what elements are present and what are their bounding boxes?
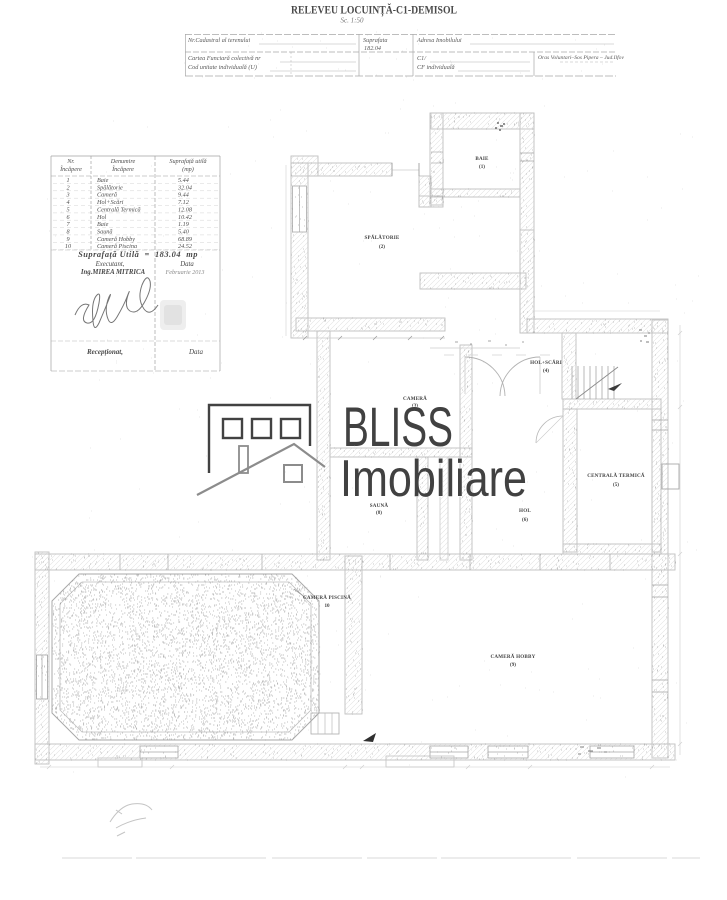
svg-text:1.19: 1.19 bbox=[178, 221, 189, 228]
svg-text:Imobiliare: Imobiliare bbox=[340, 450, 527, 508]
svg-text:(9): (9) bbox=[510, 661, 516, 668]
svg-text:HOL: HOL bbox=[519, 508, 531, 514]
svg-text:5.44: 5.44 bbox=[178, 177, 189, 184]
svg-text:9: 9 bbox=[66, 236, 69, 243]
svg-text:Cameră Hobby: Cameră Hobby bbox=[97, 236, 135, 243]
svg-text:Cameră: Cameră bbox=[97, 192, 117, 199]
svg-text:1: 1 bbox=[66, 177, 69, 184]
svg-text:Nr.Cadastral al terenului: Nr.Cadastral al terenului bbox=[187, 37, 250, 44]
svg-text:Saună: Saună bbox=[97, 228, 112, 235]
svg-text:7: 7 bbox=[66, 221, 70, 228]
svg-text:CAMERĂ HOBBY: CAMERĂ HOBBY bbox=[491, 652, 536, 660]
svg-text:(1): (1) bbox=[479, 163, 485, 170]
svg-text:7.12: 7.12 bbox=[178, 199, 189, 206]
svg-text:Suprafață utilă: Suprafață utilă bbox=[169, 158, 206, 165]
svg-text:Executant,: Executant, bbox=[95, 261, 125, 268]
svg-text:10: 10 bbox=[324, 603, 330, 609]
svg-text:C1/: C1/ bbox=[417, 55, 427, 62]
svg-text:Baie: Baie bbox=[97, 221, 109, 228]
svg-text:Suprafata: Suprafata bbox=[363, 37, 387, 44]
svg-text:32.04: 32.04 bbox=[177, 184, 192, 191]
svg-text:Adresa Imobilului: Adresa Imobilului bbox=[416, 37, 462, 44]
svg-text:10.42: 10.42 bbox=[178, 214, 192, 221]
svg-text:CENTRALĂ TERMICĂ: CENTRALĂ TERMICĂ bbox=[587, 471, 645, 479]
svg-text:(4): (4) bbox=[543, 367, 549, 374]
svg-text:2: 2 bbox=[66, 184, 69, 191]
svg-text:(5): (5) bbox=[613, 481, 619, 488]
svg-text:CAMERĂ PISCINĂ: CAMERĂ PISCINĂ bbox=[303, 593, 351, 601]
svg-text:Data: Data bbox=[188, 348, 204, 356]
svg-text:Februarie 2013: Februarie 2013 bbox=[164, 269, 204, 276]
svg-text:10: 10 bbox=[65, 243, 72, 250]
svg-text:BLISS: BLISS bbox=[343, 395, 453, 458]
svg-text:3: 3 bbox=[65, 192, 69, 199]
svg-text:BAIE: BAIE bbox=[475, 156, 489, 162]
svg-text:68.89: 68.89 bbox=[178, 236, 192, 243]
svg-text:Denumire: Denumire bbox=[110, 158, 136, 165]
svg-text:RELEVEU LOCUINȚĂ-C1-DEMISOL: RELEVEU LOCUINȚĂ-C1-DEMISOL bbox=[291, 3, 457, 18]
svg-text:Ing.MIREA MITRICA: Ing.MIREA MITRICA bbox=[80, 269, 146, 276]
svg-text:Încăpere: Încăpere bbox=[59, 165, 82, 173]
svg-text:Cartea Funciară colectivă nr: Cartea Funciară colectivă nr bbox=[188, 55, 261, 62]
svg-text:12.08: 12.08 bbox=[178, 206, 193, 213]
svg-text:8: 8 bbox=[66, 228, 70, 235]
svg-text:(mp): (mp) bbox=[182, 166, 194, 173]
svg-text:Centrală Termică: Centrală Termică bbox=[97, 206, 141, 213]
svg-text:6: 6 bbox=[66, 214, 70, 221]
svg-text:Recepționat,: Recepționat, bbox=[86, 348, 123, 356]
svg-text:5: 5 bbox=[66, 206, 69, 213]
svg-text:5.40: 5.40 bbox=[178, 228, 190, 235]
svg-text:Baie: Baie bbox=[97, 177, 109, 184]
svg-text:(8): (8) bbox=[376, 509, 382, 516]
svg-text:Spălătorie: Spălătorie bbox=[97, 184, 123, 191]
svg-text:(2): (2) bbox=[379, 243, 385, 250]
svg-text:SPĂLĂTORIE: SPĂLĂTORIE bbox=[364, 233, 399, 241]
svg-text:Cod unitate individuală (U): Cod unitate individuală (U) bbox=[188, 64, 257, 71]
svg-text:9.44: 9.44 bbox=[178, 192, 189, 199]
svg-text:Hol+Scări: Hol+Scări bbox=[96, 199, 124, 206]
svg-text:HOL+SCĂRI: HOL+SCĂRI bbox=[530, 358, 562, 366]
svg-text:(6): (6) bbox=[522, 516, 528, 523]
svg-text:182.04: 182.04 bbox=[364, 45, 381, 52]
svg-text:Data: Data bbox=[179, 261, 194, 268]
svg-text:Hol: Hol bbox=[96, 214, 107, 221]
svg-text:Suprafață Utilă = 183.04 mp: Suprafață Utilă = 183.04 mp bbox=[78, 250, 198, 259]
svg-text:Nr.: Nr. bbox=[66, 158, 74, 165]
svg-text:Oras Voluntari–Sos Pipera – Ju: Oras Voluntari–Sos Pipera – Jud.Ilfov bbox=[538, 54, 624, 61]
svg-text:Încăpere: Încăpere bbox=[111, 165, 134, 173]
svg-text:CF individuală: CF individuală bbox=[417, 64, 455, 71]
svg-text:Sc. 1:50: Sc. 1:50 bbox=[341, 17, 364, 25]
svg-text:4: 4 bbox=[66, 199, 69, 206]
